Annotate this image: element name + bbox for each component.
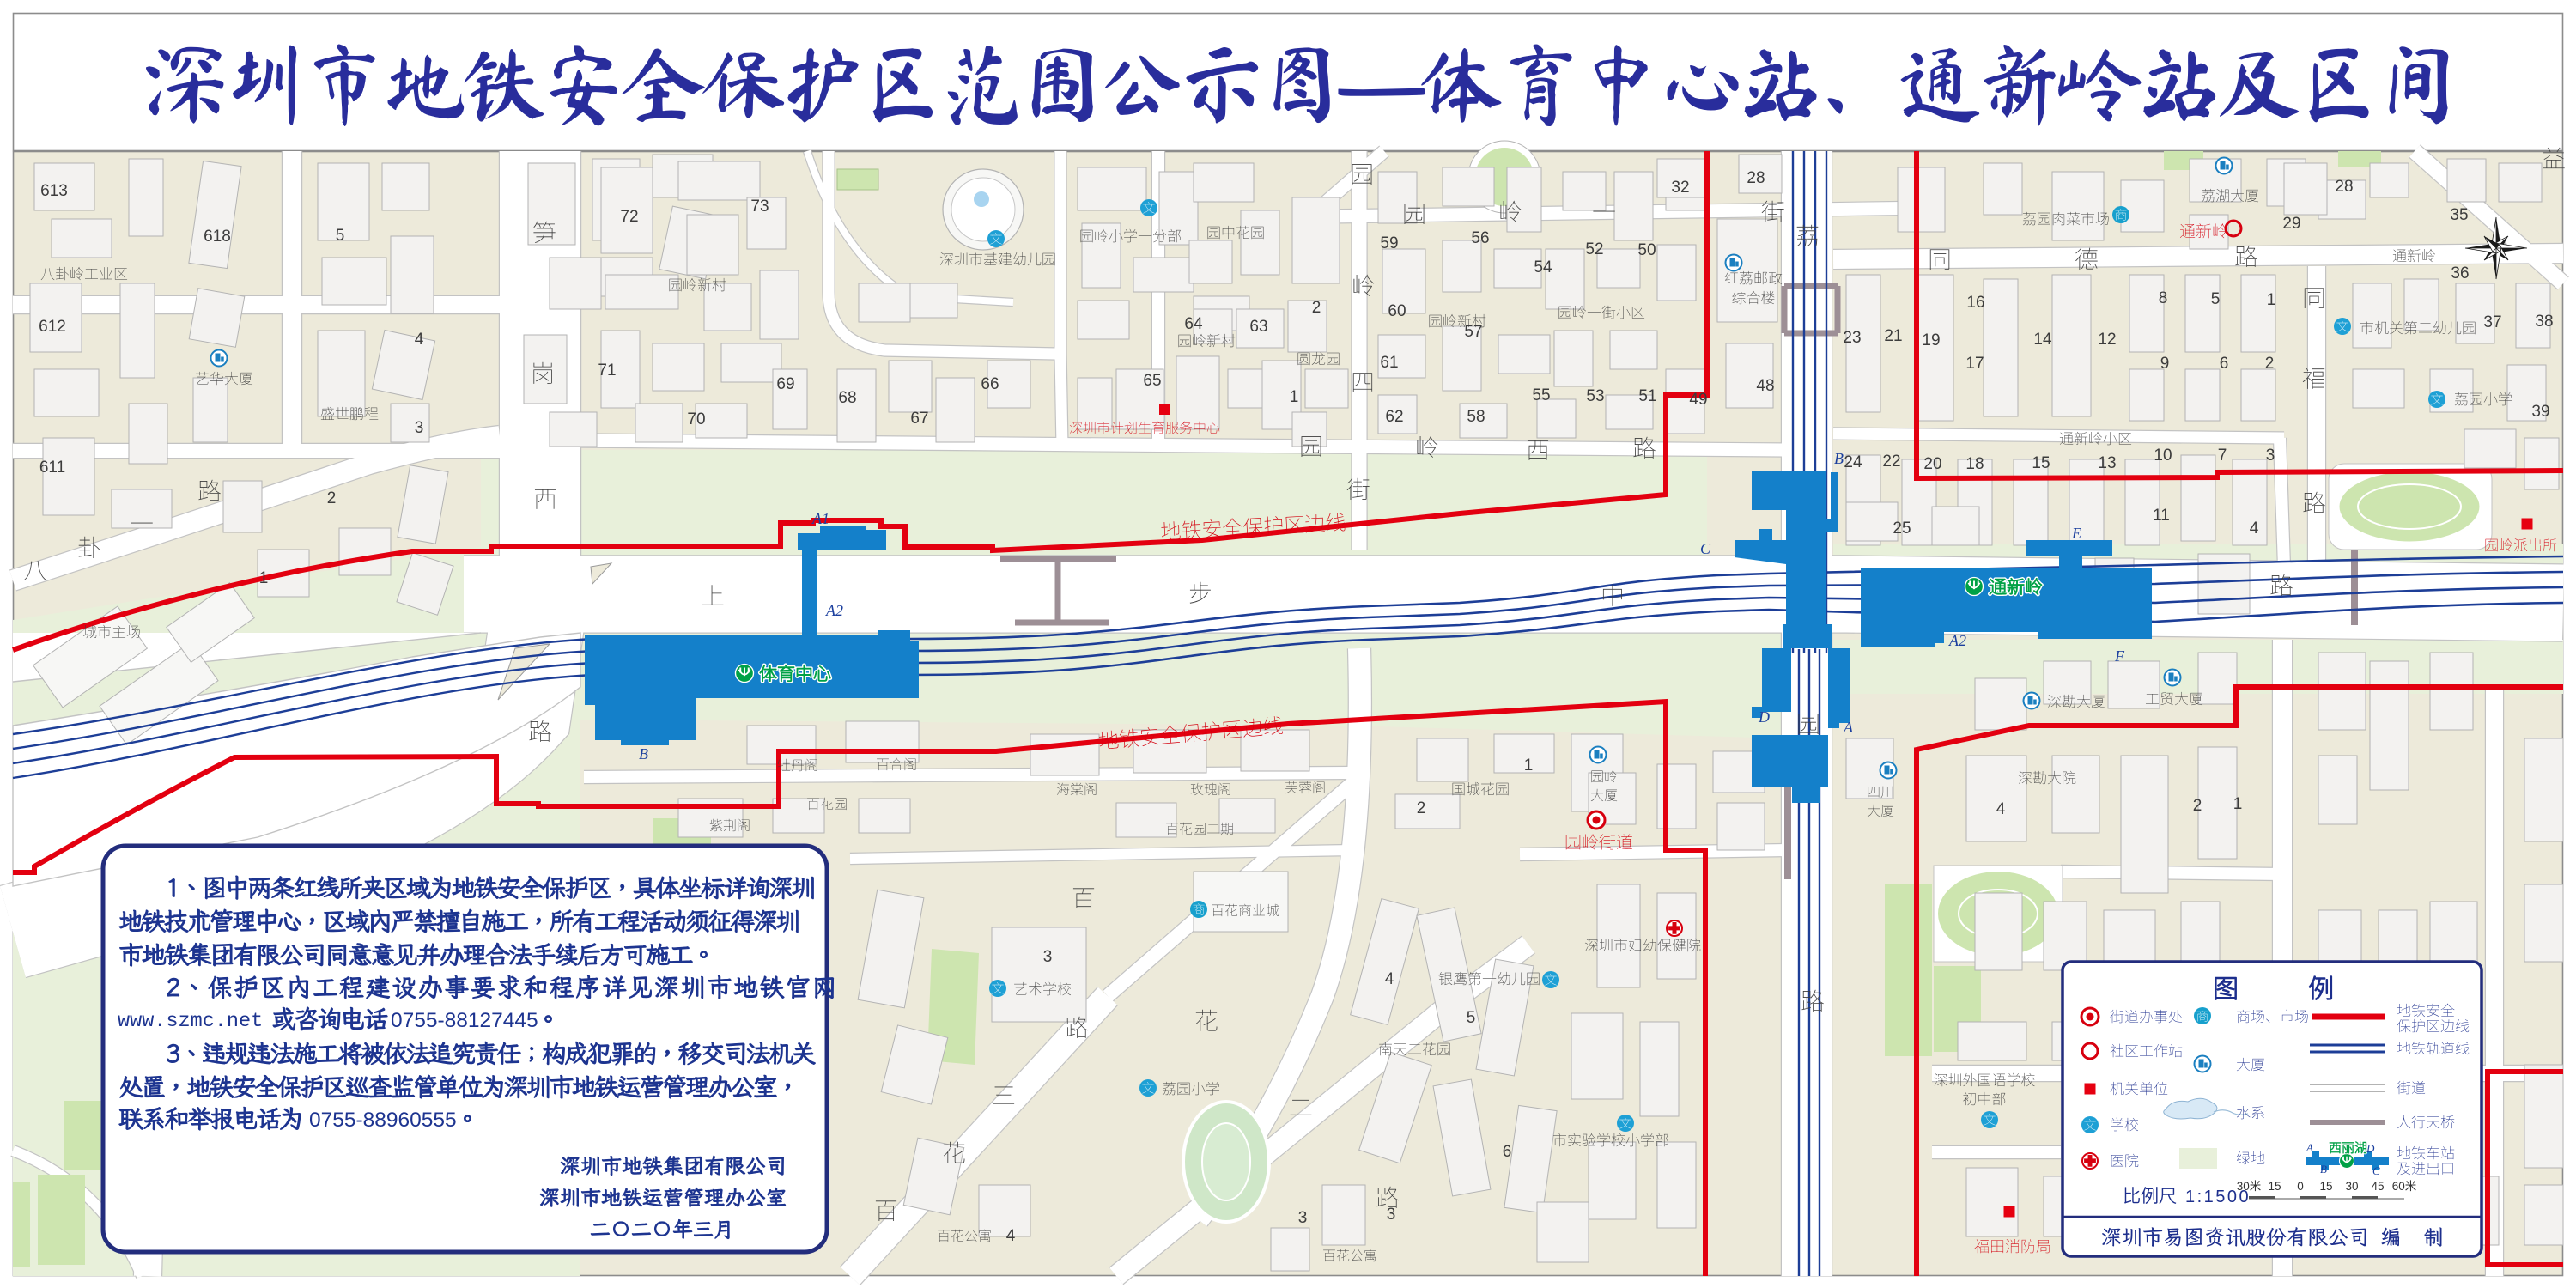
svg-text:55: 55 <box>1532 386 1550 404</box>
svg-text:1: 1 <box>1290 388 1299 406</box>
svg-text:32: 32 <box>1671 179 1689 197</box>
svg-text:37: 37 <box>2483 313 2501 331</box>
svg-text:20: 20 <box>1923 455 1941 473</box>
svg-text:2: 2 <box>327 489 337 507</box>
svg-text:D: D <box>1758 708 1770 726</box>
svg-text:73: 73 <box>750 197 769 216</box>
svg-text:A: A <box>1843 719 1854 736</box>
svg-text:52: 52 <box>1585 240 1603 258</box>
svg-text:71: 71 <box>598 361 616 380</box>
svg-text:45: 45 <box>2371 1180 2384 1193</box>
svg-text:56: 56 <box>1471 229 1489 247</box>
svg-text:612: 612 <box>39 318 66 336</box>
svg-text:1: 1 <box>2233 795 2243 813</box>
svg-text:613: 613 <box>40 182 68 200</box>
svg-text:0: 0 <box>2297 1180 2304 1193</box>
svg-text:B: B <box>2320 1163 2327 1176</box>
svg-text:4: 4 <box>2250 519 2259 538</box>
svg-text:15: 15 <box>2268 1180 2281 1193</box>
svg-text:28: 28 <box>2335 178 2353 196</box>
svg-text:6: 6 <box>2220 355 2229 373</box>
svg-text:58: 58 <box>1467 408 1485 426</box>
svg-text:70: 70 <box>687 410 705 428</box>
svg-text:4: 4 <box>1385 970 1394 988</box>
svg-text:60米: 60米 <box>2392 1180 2417 1193</box>
svg-text:24: 24 <box>1844 453 1862 471</box>
svg-text:6: 6 <box>1503 1143 1512 1161</box>
svg-text:A: A <box>2306 1141 2313 1154</box>
svg-text:5: 5 <box>1467 1009 1476 1027</box>
svg-text:68: 68 <box>838 389 856 407</box>
svg-text:3: 3 <box>2266 447 2275 465</box>
svg-text:www.szmc.net: www.szmc.net <box>118 1010 263 1033</box>
svg-text:2: 2 <box>2193 797 2202 815</box>
svg-text:F: F <box>2114 647 2125 665</box>
svg-text:4: 4 <box>1996 800 2006 818</box>
svg-text:29: 29 <box>2282 215 2300 233</box>
svg-text:B: B <box>1834 450 1844 467</box>
svg-text:49: 49 <box>1689 391 1707 409</box>
svg-text:C: C <box>1700 540 1711 557</box>
svg-text:59: 59 <box>1380 234 1398 252</box>
svg-text:65: 65 <box>1143 372 1161 390</box>
svg-text:11: 11 <box>2153 507 2170 525</box>
svg-text:28: 28 <box>1747 169 1765 187</box>
svg-text:5: 5 <box>2211 290 2221 308</box>
svg-text:618: 618 <box>204 228 231 246</box>
svg-text:0755-88127445: 0755-88127445 <box>391 1009 538 1032</box>
svg-text:53: 53 <box>1586 387 1604 405</box>
svg-text:67: 67 <box>910 410 928 428</box>
svg-text:30: 30 <box>2345 1180 2358 1193</box>
svg-text:54: 54 <box>1534 258 1552 276</box>
svg-text:3: 3 <box>1298 1209 1308 1227</box>
svg-text:39: 39 <box>2531 403 2549 421</box>
svg-text:10: 10 <box>2154 447 2172 465</box>
svg-text:3: 3 <box>1387 1206 1396 1224</box>
svg-text:15: 15 <box>2032 454 2050 472</box>
svg-text:23: 23 <box>1843 329 1861 347</box>
svg-text:57: 57 <box>1464 323 1482 341</box>
svg-text:A1: A1 <box>811 510 829 527</box>
svg-text:16: 16 <box>1966 294 1984 312</box>
svg-text:38: 38 <box>2535 313 2553 331</box>
svg-text:62: 62 <box>1385 408 1403 426</box>
svg-text:14: 14 <box>2033 331 2052 349</box>
svg-text:3: 3 <box>1043 948 1053 966</box>
svg-text:17: 17 <box>1965 355 1984 373</box>
svg-text:66: 66 <box>981 375 999 393</box>
svg-text:50: 50 <box>1637 241 1656 259</box>
svg-text:C: C <box>2372 1164 2380 1177</box>
svg-text:4: 4 <box>415 331 424 349</box>
svg-text:18: 18 <box>1965 455 1984 473</box>
svg-text:60: 60 <box>1388 302 1406 320</box>
svg-text:5: 5 <box>336 227 345 245</box>
svg-text:63: 63 <box>1249 318 1267 336</box>
svg-text:D: D <box>2366 1142 2375 1155</box>
svg-text:61: 61 <box>1380 354 1398 372</box>
svg-text:69: 69 <box>776 375 794 393</box>
svg-text:12: 12 <box>2098 331 2116 349</box>
svg-text:13: 13 <box>2098 454 2116 472</box>
svg-text:8: 8 <box>2159 289 2168 307</box>
svg-text:1: 1 <box>1524 756 1534 775</box>
svg-text:2: 2 <box>1417 799 1426 817</box>
svg-text:611: 611 <box>39 459 65 477</box>
svg-text:A2: A2 <box>825 602 843 619</box>
svg-text:3: 3 <box>415 419 424 437</box>
svg-text:72: 72 <box>620 208 638 226</box>
svg-text:0755-88960555: 0755-88960555 <box>309 1109 457 1132</box>
svg-text:21: 21 <box>1884 327 1902 345</box>
svg-text:2: 2 <box>1312 299 1321 317</box>
svg-text:25: 25 <box>1893 519 1911 538</box>
svg-text:E: E <box>2071 525 2081 542</box>
svg-text:9: 9 <box>2160 355 2170 373</box>
svg-text:19: 19 <box>1922 331 1940 349</box>
svg-text:30米: 30米 <box>2237 1180 2262 1193</box>
svg-text:1: 1 <box>259 569 269 587</box>
svg-text:1: 1 <box>2267 291 2276 309</box>
svg-text:15: 15 <box>2319 1180 2332 1193</box>
svg-text:7: 7 <box>2218 447 2227 465</box>
svg-text:64: 64 <box>1184 315 1203 333</box>
svg-text:22: 22 <box>1882 453 1900 471</box>
svg-text:35: 35 <box>2450 206 2468 224</box>
svg-text:36: 36 <box>2451 264 2469 283</box>
svg-text:48: 48 <box>1756 377 1774 395</box>
svg-text:4: 4 <box>1006 1227 1016 1245</box>
svg-text:2: 2 <box>2265 355 2275 373</box>
svg-text:A2: A2 <box>1948 632 1966 649</box>
svg-text:51: 51 <box>1638 387 1656 405</box>
svg-text:B: B <box>639 745 648 762</box>
